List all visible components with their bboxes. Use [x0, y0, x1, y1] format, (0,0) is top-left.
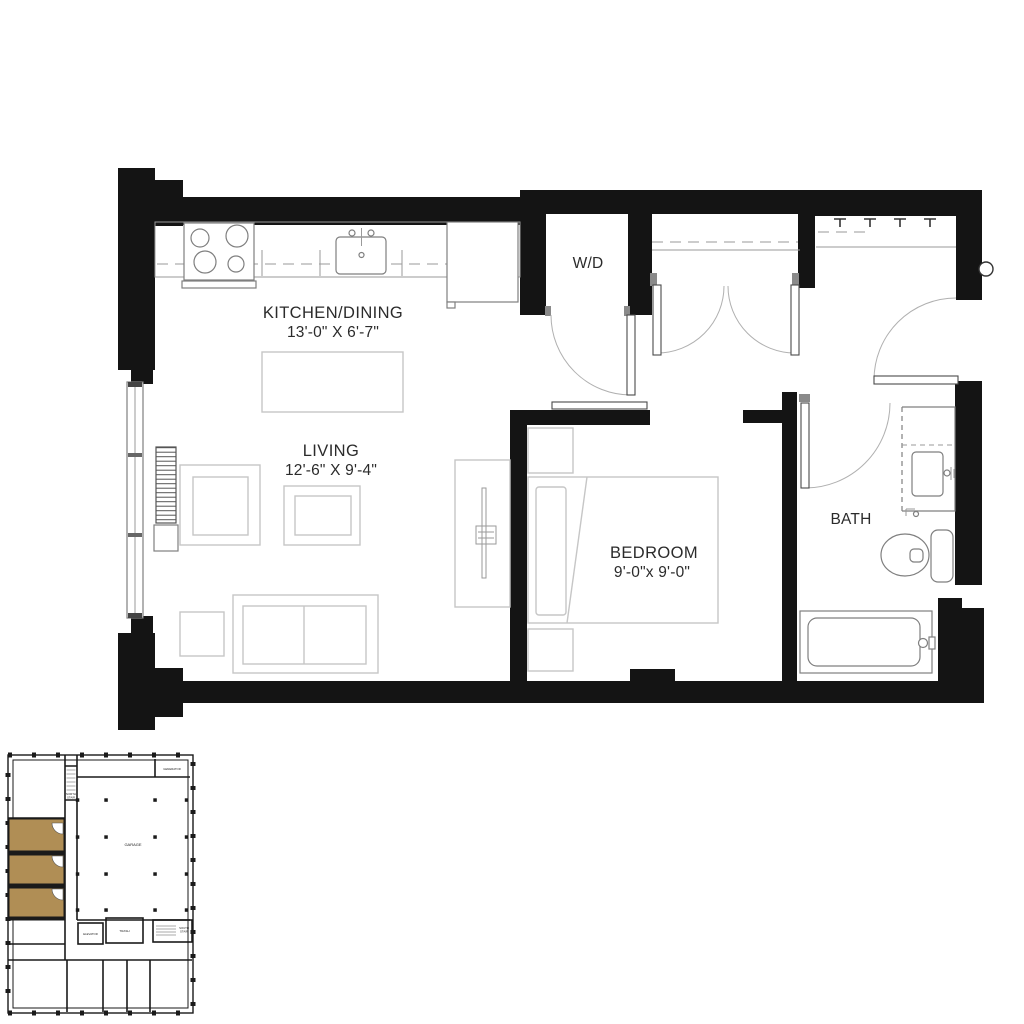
floorplan-page: KITCHEN/DINING 13'-0" X 6'-7" LIVING 12'… [0, 0, 1024, 1024]
generator-label: GENERATOR [163, 767, 180, 771]
window [127, 382, 143, 618]
bath-door [801, 403, 890, 488]
north-stair-label-2: STAIR [67, 796, 75, 800]
entry-closet [816, 219, 956, 247]
kitchen-sink [336, 228, 386, 274]
kitchen-dims: 13'-0" X 6'-7" [287, 324, 379, 341]
tv-console [455, 460, 510, 607]
kitchen-label: KITCHEN/DINING [263, 304, 403, 322]
toilet [881, 530, 953, 582]
radiator [154, 447, 178, 551]
living-dims: 12'-6" X 9'-4" [285, 462, 377, 479]
stove [182, 223, 256, 288]
refrigerator [447, 222, 518, 308]
sofa [233, 595, 378, 673]
unit-plan: KITCHEN/DINING 13'-0" X 6'-7" LIVING 12'… [118, 168, 993, 730]
living-label: LIVING [303, 442, 360, 460]
highlighted-units [8, 819, 65, 921]
door-knob [979, 262, 993, 276]
bedroom-dims: 9'-0"x 9'-0" [614, 564, 690, 581]
vanity [902, 407, 955, 517]
floorplan-drawing: KITCHEN/DINING 13'-0" X 6'-7" LIVING 12'… [0, 0, 1024, 1024]
hall-closet [652, 242, 800, 355]
bedroom-shelf [552, 402, 647, 409]
nightstand [528, 629, 573, 671]
bathtub [800, 611, 935, 673]
laundry-door [551, 315, 635, 395]
garage-label: GARAGE [124, 842, 141, 847]
bedroom-label: BEDROOM [610, 544, 698, 562]
kitchen-island [262, 352, 403, 412]
side-table [180, 612, 224, 656]
south-stair-label-2: STAIR [180, 930, 188, 934]
lounge-chair [180, 465, 260, 545]
nightstand [528, 428, 573, 473]
lounge-chair [284, 486, 360, 545]
bath-label: BATH [831, 511, 872, 528]
laundry-label: W/D [573, 255, 604, 272]
elevator-label: ELEVATOR [83, 932, 97, 936]
building-locator-map: GARAGE GENERATOR NORTH STAIR ELEVATOR TR… [8, 755, 193, 1013]
trash-label: TRASH [119, 929, 129, 933]
